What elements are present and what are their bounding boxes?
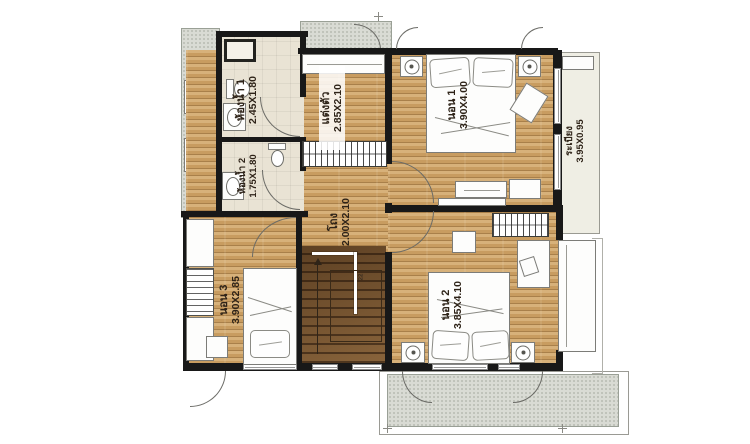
- wardrobe: [302, 54, 385, 74]
- stair-opening: [330, 270, 382, 342]
- wall: [385, 252, 392, 371]
- closet: [302, 141, 387, 167]
- sink-counter: [222, 172, 244, 200]
- pillow: [429, 57, 471, 89]
- shelves: [186, 268, 214, 316]
- nightstand: [401, 342, 425, 363]
- balcony-floor: [558, 52, 600, 234]
- wardrobe: [186, 219, 214, 267]
- door-arc-exterior: [190, 371, 226, 407]
- side-table: [206, 336, 228, 358]
- side-table: [452, 231, 476, 253]
- stair-level-mark: 22: [358, 274, 364, 281]
- sink-counter: [223, 103, 246, 131]
- nightstand: [511, 342, 535, 363]
- wall: [181, 211, 308, 217]
- pillow: [471, 330, 509, 361]
- window: [554, 134, 561, 190]
- window: [312, 364, 338, 370]
- toilet-tank: [226, 79, 234, 99]
- balcony-planter: [562, 56, 594, 70]
- window: [432, 364, 488, 370]
- console: [509, 179, 541, 199]
- pillow: [431, 330, 470, 362]
- window-bay-line: [566, 245, 567, 347]
- blanket-fold: [441, 308, 503, 318]
- lamp-icon: [406, 345, 421, 360]
- window: [352, 364, 382, 370]
- shower-tray: [224, 39, 256, 62]
- floor-plan: 22: [0, 0, 750, 444]
- stair-up-arrow: [314, 258, 322, 265]
- sink-basin: [226, 177, 240, 196]
- casement-window-arc: [396, 27, 418, 49]
- dimension-tick: [558, 424, 567, 433]
- nightstand: [518, 56, 541, 77]
- toilet-bowl: [234, 80, 250, 98]
- nightstand: [400, 56, 423, 77]
- window: [498, 364, 520, 370]
- wall: [216, 31, 308, 37]
- closet: [492, 213, 549, 237]
- toilet-bowl: [271, 150, 284, 167]
- desk: [455, 181, 507, 198]
- pillow: [472, 57, 513, 88]
- lamp-icon: [404, 59, 419, 74]
- desk-line: [464, 190, 500, 191]
- tv-console: [438, 198, 506, 206]
- window: [554, 68, 561, 124]
- lamp-icon: [516, 345, 531, 360]
- pillow: [250, 330, 290, 358]
- staircase: 22: [302, 246, 386, 368]
- window-bay: [558, 240, 596, 352]
- lamp-icon: [522, 59, 537, 74]
- wardrobe-rail: [307, 64, 382, 65]
- blanket-fold: [435, 117, 509, 136]
- blanket-fold: [250, 306, 291, 316]
- dimension-tick: [383, 424, 392, 433]
- wall: [220, 137, 304, 142]
- wall: [556, 212, 563, 240]
- stair-up-arrow-line: [317, 264, 318, 354]
- dimension-tick: [374, 12, 383, 21]
- sink-basin: [227, 108, 242, 127]
- casement-window-arc: [521, 27, 543, 49]
- toilet-tank: [268, 143, 286, 150]
- stair-rail: [312, 252, 357, 255]
